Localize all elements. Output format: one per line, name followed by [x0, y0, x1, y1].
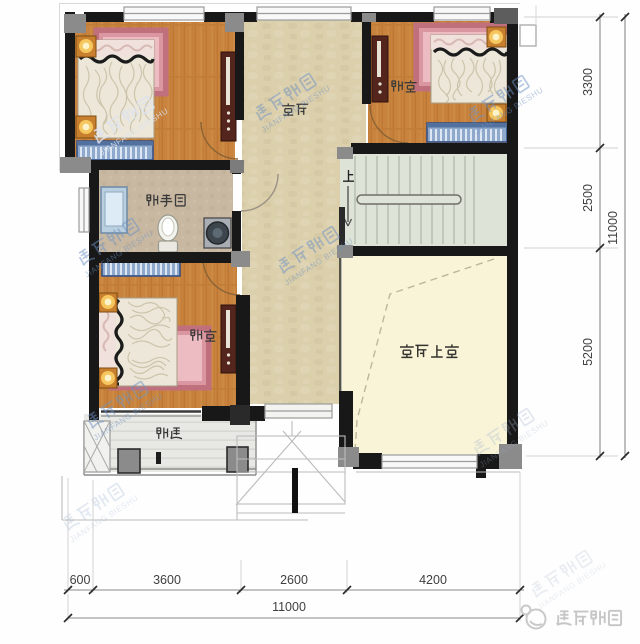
svg-text:2500: 2500	[581, 184, 595, 212]
svg-text:5200: 5200	[581, 338, 595, 366]
svg-text:2600: 2600	[280, 573, 308, 587]
svg-text:600: 600	[70, 573, 91, 587]
svg-text:4200: 4200	[419, 573, 447, 587]
svg-text:11000: 11000	[606, 211, 620, 245]
svg-text:3300: 3300	[581, 68, 595, 96]
svg-text:11000: 11000	[272, 600, 306, 614]
svg-text:3600: 3600	[153, 573, 181, 587]
